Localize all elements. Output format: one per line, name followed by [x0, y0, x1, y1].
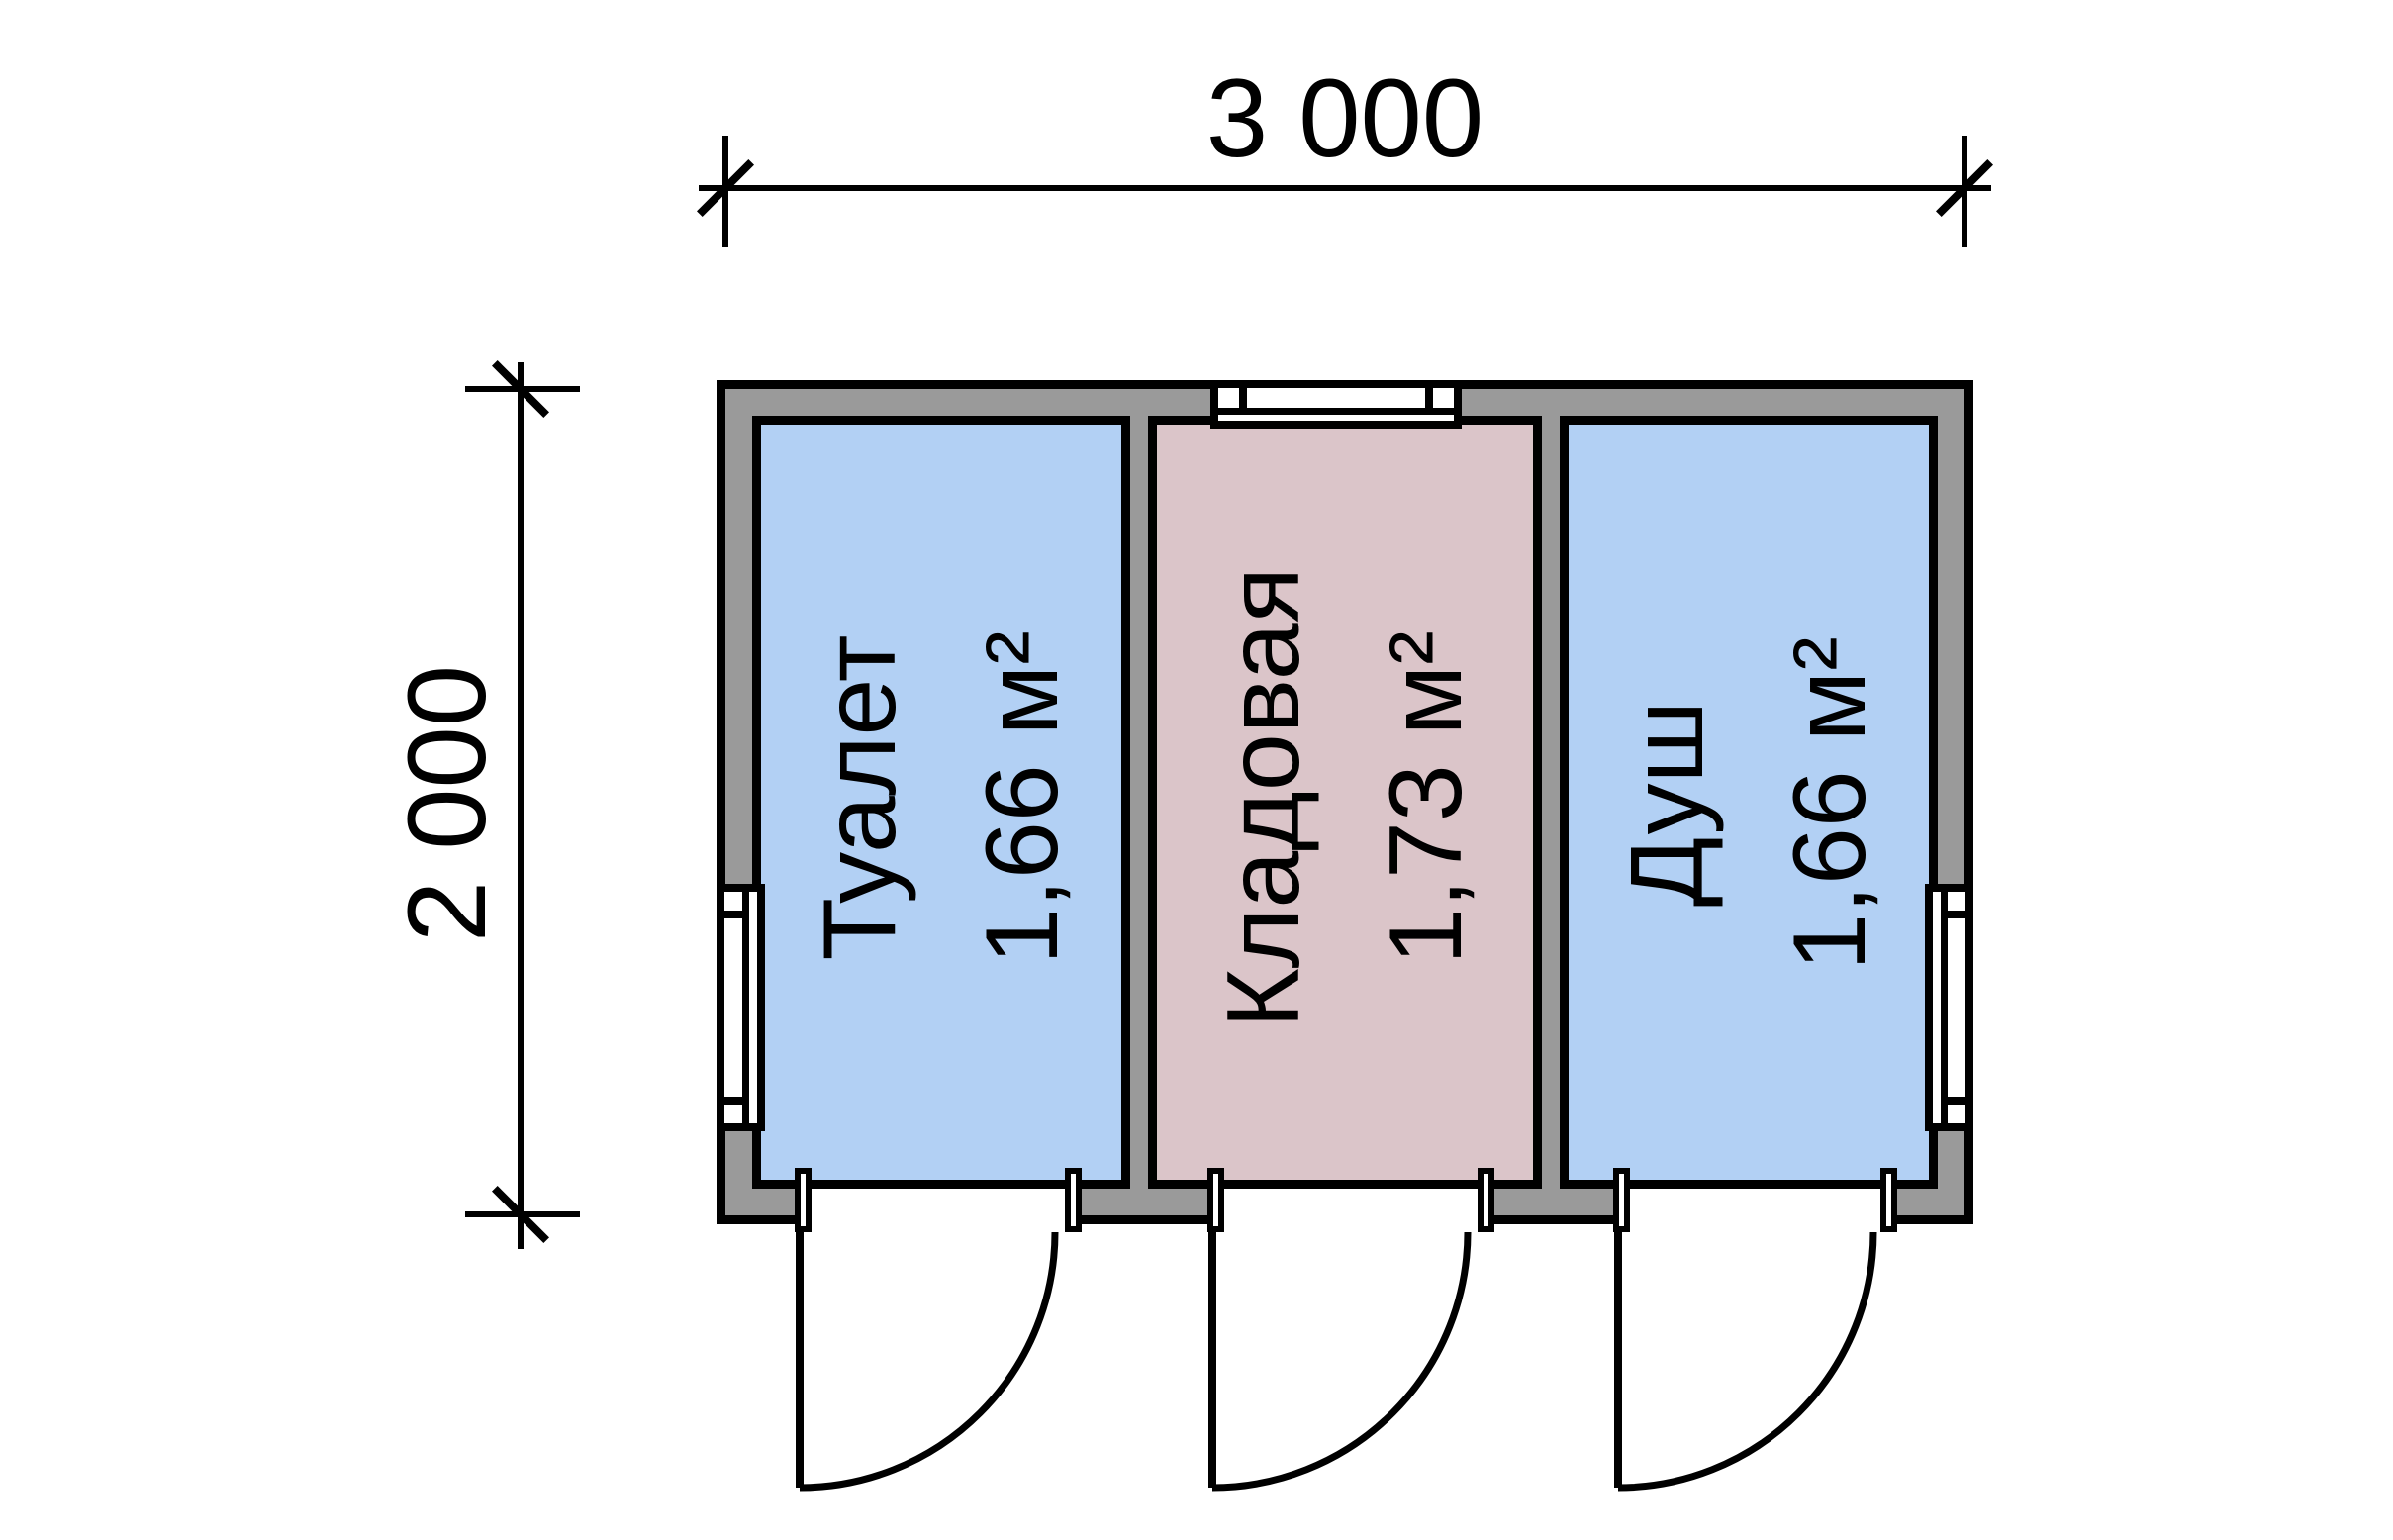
room-label-shower: Душ 1,66 м²: [1586, 636, 1911, 970]
room-storage-name: Кладовая: [1183, 567, 1345, 1028]
door-swing-shower: [1618, 1232, 1873, 1488]
room-label-toilet: Туалет 1,66 м²: [779, 630, 1103, 964]
door-swing-toilet: [800, 1232, 1055, 1488]
door-swing-storage: [1212, 1232, 1468, 1488]
room-shower-name: Душ: [1586, 636, 1749, 970]
room-storage-area: 1,73 м²: [1345, 567, 1507, 1028]
room-toilet-name: Туалет: [779, 630, 941, 964]
room-shower-area: 1,66 м²: [1749, 636, 1911, 970]
room-toilet-area: 1,66 м²: [941, 630, 1103, 964]
room-label-storage: Кладовая 1,73 м²: [1183, 567, 1507, 1028]
floor-plan: 3 000 2 000 Туалет 1: [0, 0, 2393, 1540]
